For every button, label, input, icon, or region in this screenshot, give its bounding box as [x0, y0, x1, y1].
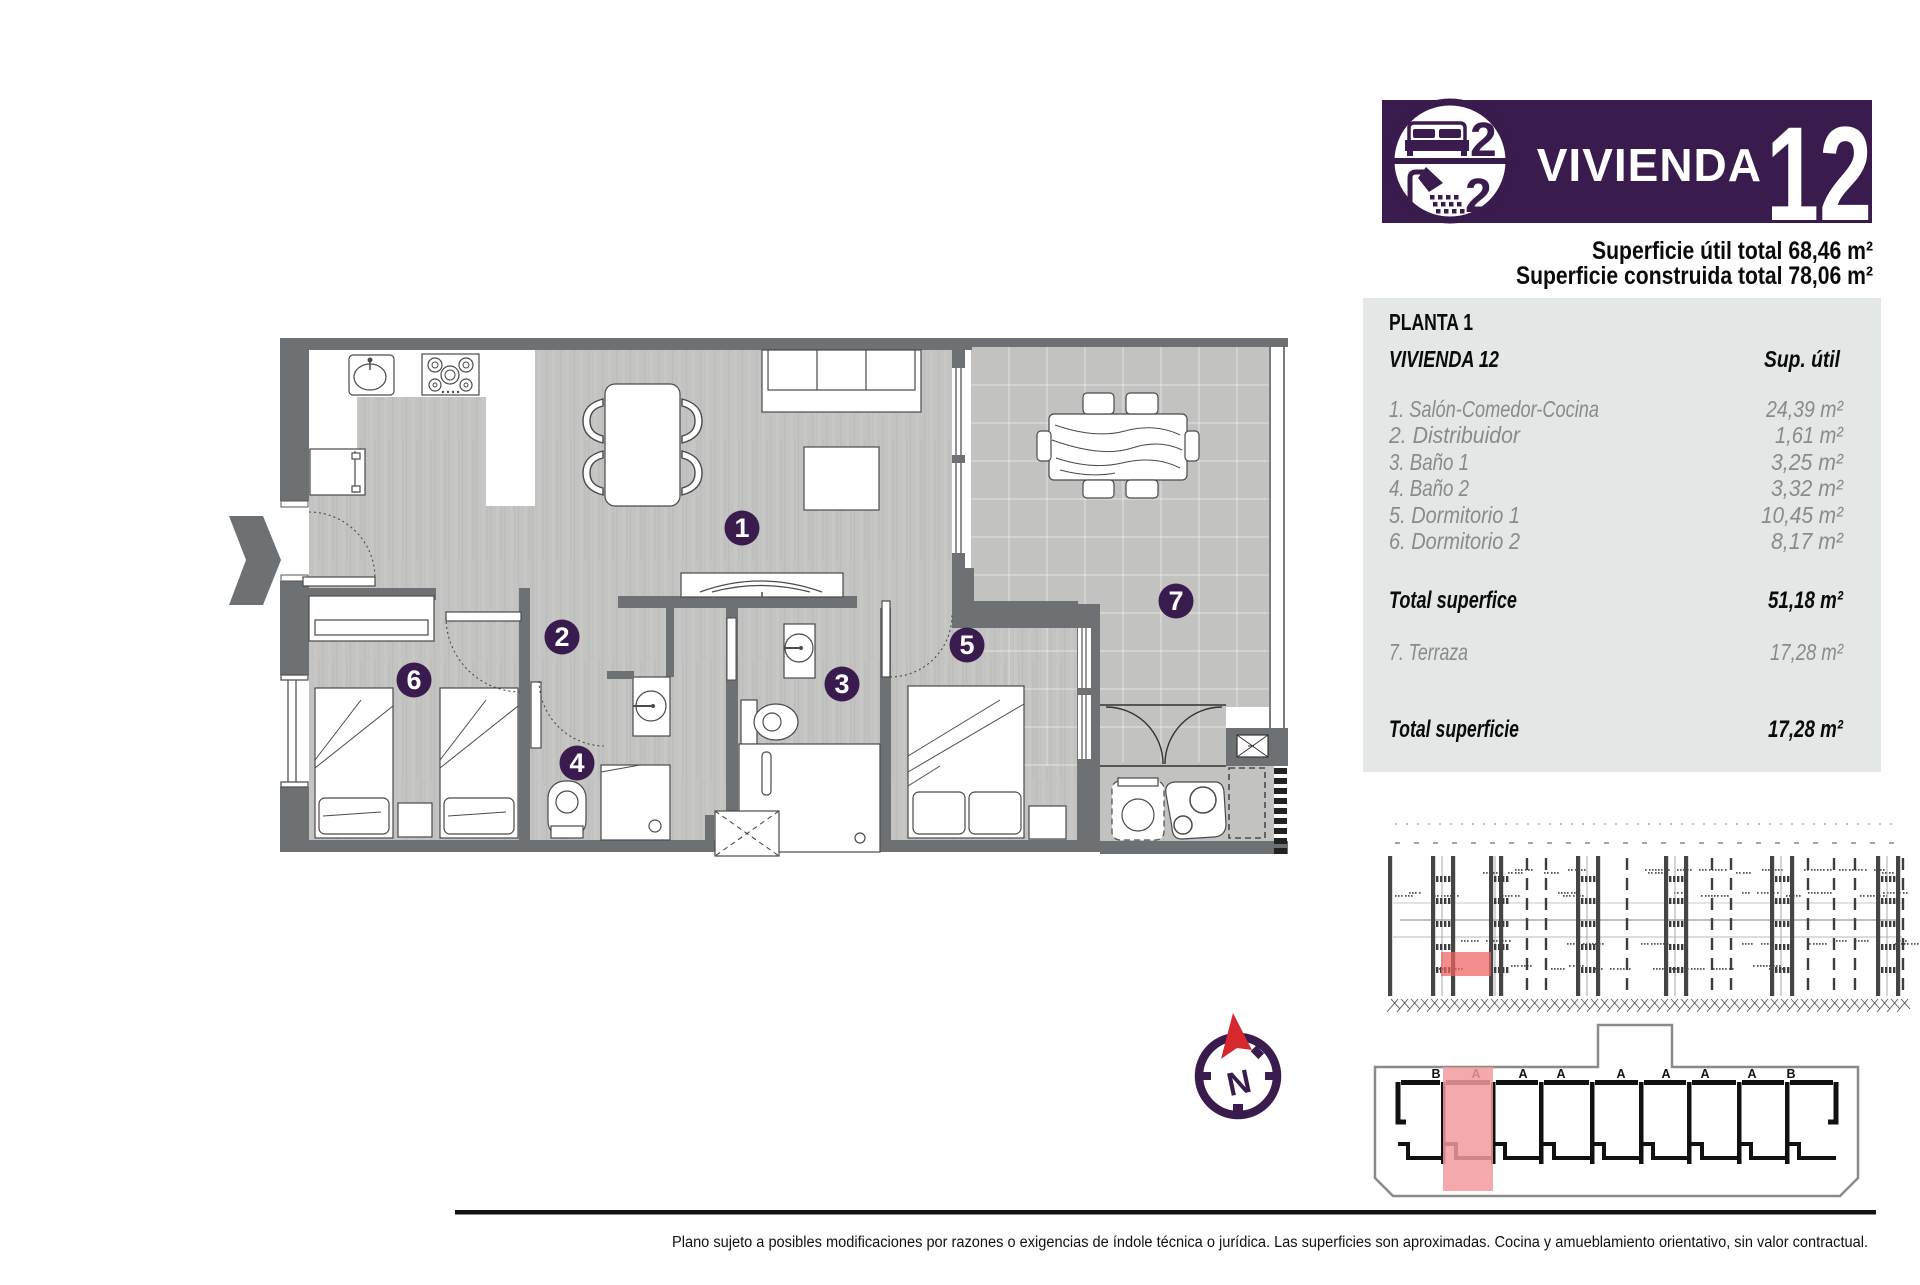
svg-text:A: A: [1518, 1067, 1527, 1081]
svg-text:5. Dormitorio 1: 5. Dormitorio 1: [1389, 502, 1520, 528]
svg-text:8,17 m²: 8,17 m²: [1771, 528, 1844, 554]
svg-text:B: B: [1786, 1067, 1795, 1081]
svg-text:5: 5: [959, 630, 974, 660]
svg-text:VIVIENDA: VIVIENDA: [1537, 139, 1762, 191]
svg-text:51,18 m²: 51,18 m²: [1768, 587, 1844, 614]
svg-text:A: A: [1661, 1067, 1670, 1081]
svg-text:Superficie útil total 68,46 m²: Superficie útil total 68,46 m²: [1592, 237, 1873, 265]
svg-text:1: 1: [734, 513, 749, 543]
svg-text:17,28 m²: 17,28 m²: [1768, 716, 1844, 743]
svg-text:A: A: [1616, 1067, 1625, 1081]
svg-text:12: 12: [1766, 100, 1872, 249]
svg-text:Plano sujeto a posibles modifi: Plano sujeto a posibles modificaciones p…: [672, 1234, 1868, 1251]
svg-text:Sup. útil: Sup. útil: [1764, 346, 1841, 372]
svg-text:2. Distribuidor: 2. Distribuidor: [1388, 422, 1521, 448]
svg-text:Total superfice: Total superfice: [1389, 587, 1517, 614]
svg-text:VIVIENDA 12: VIVIENDA 12: [1389, 346, 1499, 372]
svg-text:3,32 m²: 3,32 m²: [1771, 475, 1844, 501]
svg-text:4. Baño 2: 4. Baño 2: [1389, 475, 1469, 501]
svg-text:1,61 m²: 1,61 m²: [1775, 422, 1844, 448]
svg-text:A: A: [1747, 1067, 1756, 1081]
svg-text:2: 2: [554, 622, 569, 652]
svg-text:4: 4: [569, 748, 584, 778]
svg-text:10,45 m²: 10,45 m²: [1761, 502, 1844, 528]
svg-text:17,28 m²: 17,28 m²: [1770, 639, 1844, 665]
svg-text:3: 3: [834, 669, 849, 699]
svg-text:Total superficie: Total superficie: [1389, 716, 1519, 743]
svg-text:2: 2: [1465, 170, 1492, 223]
svg-text:24,39 m²: 24,39 m²: [1765, 396, 1844, 422]
svg-text:2: 2: [1470, 114, 1497, 167]
svg-text:6: 6: [406, 665, 421, 695]
svg-text:6. Dormitorio 2: 6. Dormitorio 2: [1389, 528, 1520, 554]
svg-text:B: B: [1431, 1067, 1440, 1081]
svg-text:7. Terraza: 7. Terraza: [1389, 639, 1468, 665]
svg-text:7: 7: [1168, 586, 1183, 616]
svg-text:A: A: [1556, 1067, 1565, 1081]
svg-text:1. Salón-Comedor-Cocina: 1. Salón-Comedor-Cocina: [1389, 396, 1599, 422]
svg-text:3,25 m²: 3,25 m²: [1771, 449, 1844, 475]
svg-text:PLANTA 1: PLANTA 1: [1389, 309, 1473, 335]
svg-text:3. Baño 1: 3. Baño 1: [1389, 449, 1469, 475]
svg-text:A: A: [1700, 1067, 1709, 1081]
svg-text:Superficie construida total 78: Superficie construida total 78,06 m²: [1516, 262, 1873, 290]
